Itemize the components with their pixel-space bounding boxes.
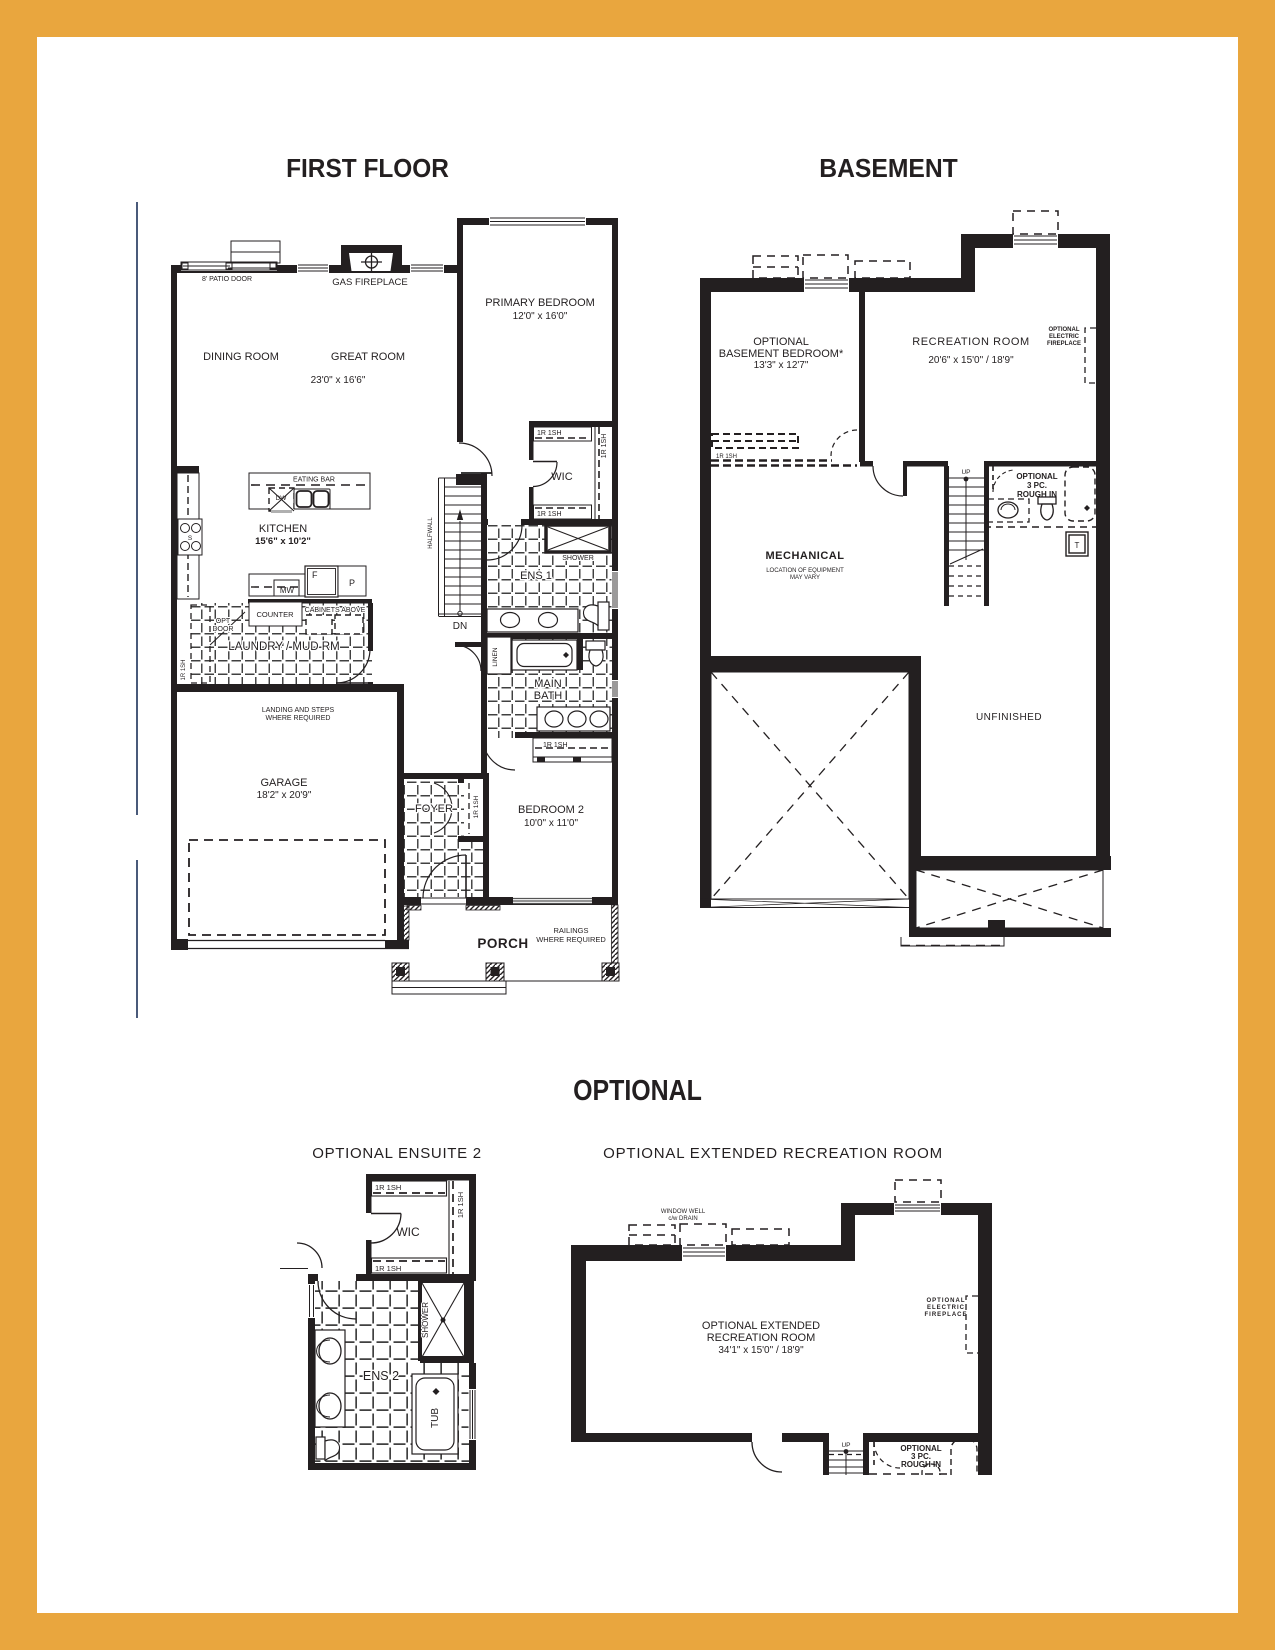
svg-text:FOYER: FOYER xyxy=(415,803,453,815)
svg-text:UNFINISHED: UNFINISHED xyxy=(976,712,1042,723)
svg-text:OPTIONAL EXTENDED RECREATION R: OPTIONAL EXTENDED RECREATION ROOM xyxy=(603,1145,943,1162)
svg-text:20'6" x 15'0" / 18'9": 20'6" x 15'0" / 18'9" xyxy=(928,355,1014,366)
svg-text:1R 1SH: 1R 1SH xyxy=(601,434,608,459)
svg-text:BEDROOM 2: BEDROOM 2 xyxy=(518,804,584,816)
svg-text:12'0" x 16'0": 12'0" x 16'0" xyxy=(513,311,568,322)
svg-text:RECREATION ROOM: RECREATION ROOM xyxy=(912,336,1030,348)
svg-text:OPTIONAL ENSUITE 2: OPTIONAL ENSUITE 2 xyxy=(312,1145,482,1162)
svg-text:OPTIONAL: OPTIONAL xyxy=(573,1074,702,1106)
svg-text:1R 1SH: 1R 1SH xyxy=(473,795,480,818)
svg-text:BASEMENT: BASEMENT xyxy=(819,154,958,183)
svg-text:LOCATION OF EQUIPMENT: LOCATION OF EQUIPMENT xyxy=(766,568,844,574)
svg-text:1R 1SH: 1R 1SH xyxy=(543,742,568,749)
svg-text:1R 1SH: 1R 1SH xyxy=(537,511,562,518)
svg-text:SHOWER: SHOWER xyxy=(562,555,594,562)
svg-text:ELECTRIC: ELECTRIC xyxy=(1049,334,1080,340)
svg-text:23'0" x 16'6": 23'0" x 16'6" xyxy=(311,375,366,386)
svg-text:OPT: OPT xyxy=(216,618,231,625)
svg-text:LANDING AND STEPS: LANDING AND STEPS xyxy=(262,707,335,714)
svg-text:OPTIONAL: OPTIONAL xyxy=(927,1298,966,1304)
svg-text:FIREPLACE: FIREPLACE xyxy=(924,1312,967,1318)
svg-text:KITCHEN: KITCHEN xyxy=(259,523,307,535)
svg-text:DN: DN xyxy=(453,621,467,632)
svg-text:MAY VARY: MAY VARY xyxy=(790,575,820,581)
svg-text:13'3" x 12'7": 13'3" x 12'7" xyxy=(754,360,809,371)
svg-text:GREAT ROOM: GREAT ROOM xyxy=(331,351,405,363)
svg-text:1R 1SH: 1R 1SH xyxy=(537,430,562,437)
svg-text:PRIMARY BEDROOM: PRIMARY BEDROOM xyxy=(485,297,595,309)
svg-text:WIC: WIC xyxy=(551,471,572,483)
svg-text:ELECTRIC: ELECTRIC xyxy=(927,1305,965,1311)
svg-text:UP: UP xyxy=(961,469,970,476)
svg-text:HALFWALL: HALFWALL xyxy=(428,517,434,549)
svg-text:S: S xyxy=(188,535,193,542)
svg-text:EATING BAR: EATING BAR xyxy=(293,477,335,484)
svg-text:ENS 1: ENS 1 xyxy=(520,570,552,582)
svg-text:1R 1SH: 1R 1SH xyxy=(716,454,737,460)
svg-text:CABINETS ABOVE: CABINETS ABOVE xyxy=(305,607,366,614)
svg-text:OPTIONAL: OPTIONAL xyxy=(1049,327,1080,333)
svg-text:GARAGE: GARAGE xyxy=(260,777,307,789)
svg-text:DOOR: DOOR xyxy=(213,626,234,633)
svg-text:RECREATION ROOM: RECREATION ROOM xyxy=(707,1332,816,1344)
svg-text:BATH: BATH xyxy=(534,690,563,702)
svg-text:LAUNDRY / MUD RM: LAUNDRY / MUD RM xyxy=(228,641,339,653)
svg-text:1R 1SH: 1R 1SH xyxy=(375,1183,401,1192)
svg-text:8' PATIO DOOR: 8' PATIO DOOR xyxy=(202,276,252,283)
svg-text:P: P xyxy=(349,578,355,588)
svg-text:T: T xyxy=(1075,541,1080,550)
svg-text:OPTIONAL: OPTIONAL xyxy=(1016,472,1057,481)
svg-text:BASEMENT BEDROOM*: BASEMENT BEDROOM* xyxy=(719,348,844,360)
svg-text:1R 1SH: 1R 1SH xyxy=(375,1264,401,1273)
svg-text:15'6" x 10'2": 15'6" x 10'2" xyxy=(255,536,311,547)
svg-text:10'0" x 11'0": 10'0" x 11'0" xyxy=(524,818,579,829)
svg-text:MAIN: MAIN xyxy=(534,678,562,690)
svg-text:RAILINGS: RAILINGS xyxy=(553,926,588,935)
svg-text:WIC: WIC xyxy=(396,1225,420,1239)
svg-text:18'2" x 20'9": 18'2" x 20'9" xyxy=(257,790,312,801)
svg-text:WINDOW WELL: WINDOW WELL xyxy=(661,1209,706,1215)
svg-text:SHOWER: SHOWER xyxy=(421,1302,430,1338)
svg-text:F: F xyxy=(312,570,318,580)
svg-text:ENS 2: ENS 2 xyxy=(363,1369,399,1383)
svg-text:LINEN: LINEN xyxy=(492,647,499,666)
svg-text:c/w DRAIN: c/w DRAIN xyxy=(668,1216,697,1222)
svg-text:34'1" x 15'0" / 18'9": 34'1" x 15'0" / 18'9" xyxy=(718,1345,804,1356)
svg-text:OPTIONAL EXTENDED: OPTIONAL EXTENDED xyxy=(702,1320,820,1332)
svg-text:GAS FIREPLACE: GAS FIREPLACE xyxy=(332,277,408,288)
svg-text:OPTIONAL: OPTIONAL xyxy=(753,336,809,348)
svg-text:FIRST FLOOR: FIRST FLOOR xyxy=(286,154,449,183)
svg-text:FIREPLACE: FIREPLACE xyxy=(1047,341,1081,347)
svg-text:1R 1SH: 1R 1SH xyxy=(181,659,187,680)
svg-text:WHERE REQUIRED: WHERE REQUIRED xyxy=(266,715,331,722)
svg-text:TUB: TUB xyxy=(430,1408,441,1428)
svg-text:DINING ROOM: DINING ROOM xyxy=(203,351,279,363)
svg-text:PORCH: PORCH xyxy=(477,936,528,951)
svg-text:3 PC.: 3 PC. xyxy=(1027,481,1047,490)
svg-text:UP: UP xyxy=(841,1442,850,1449)
svg-text:1R 1SH: 1R 1SH xyxy=(456,1192,465,1218)
svg-text:WHERE REQUIRED: WHERE REQUIRED xyxy=(536,935,606,944)
svg-text:DW: DW xyxy=(276,495,288,502)
svg-text:MECHANICAL: MECHANICAL xyxy=(766,550,845,562)
svg-text:COUNTER: COUNTER xyxy=(256,610,294,619)
